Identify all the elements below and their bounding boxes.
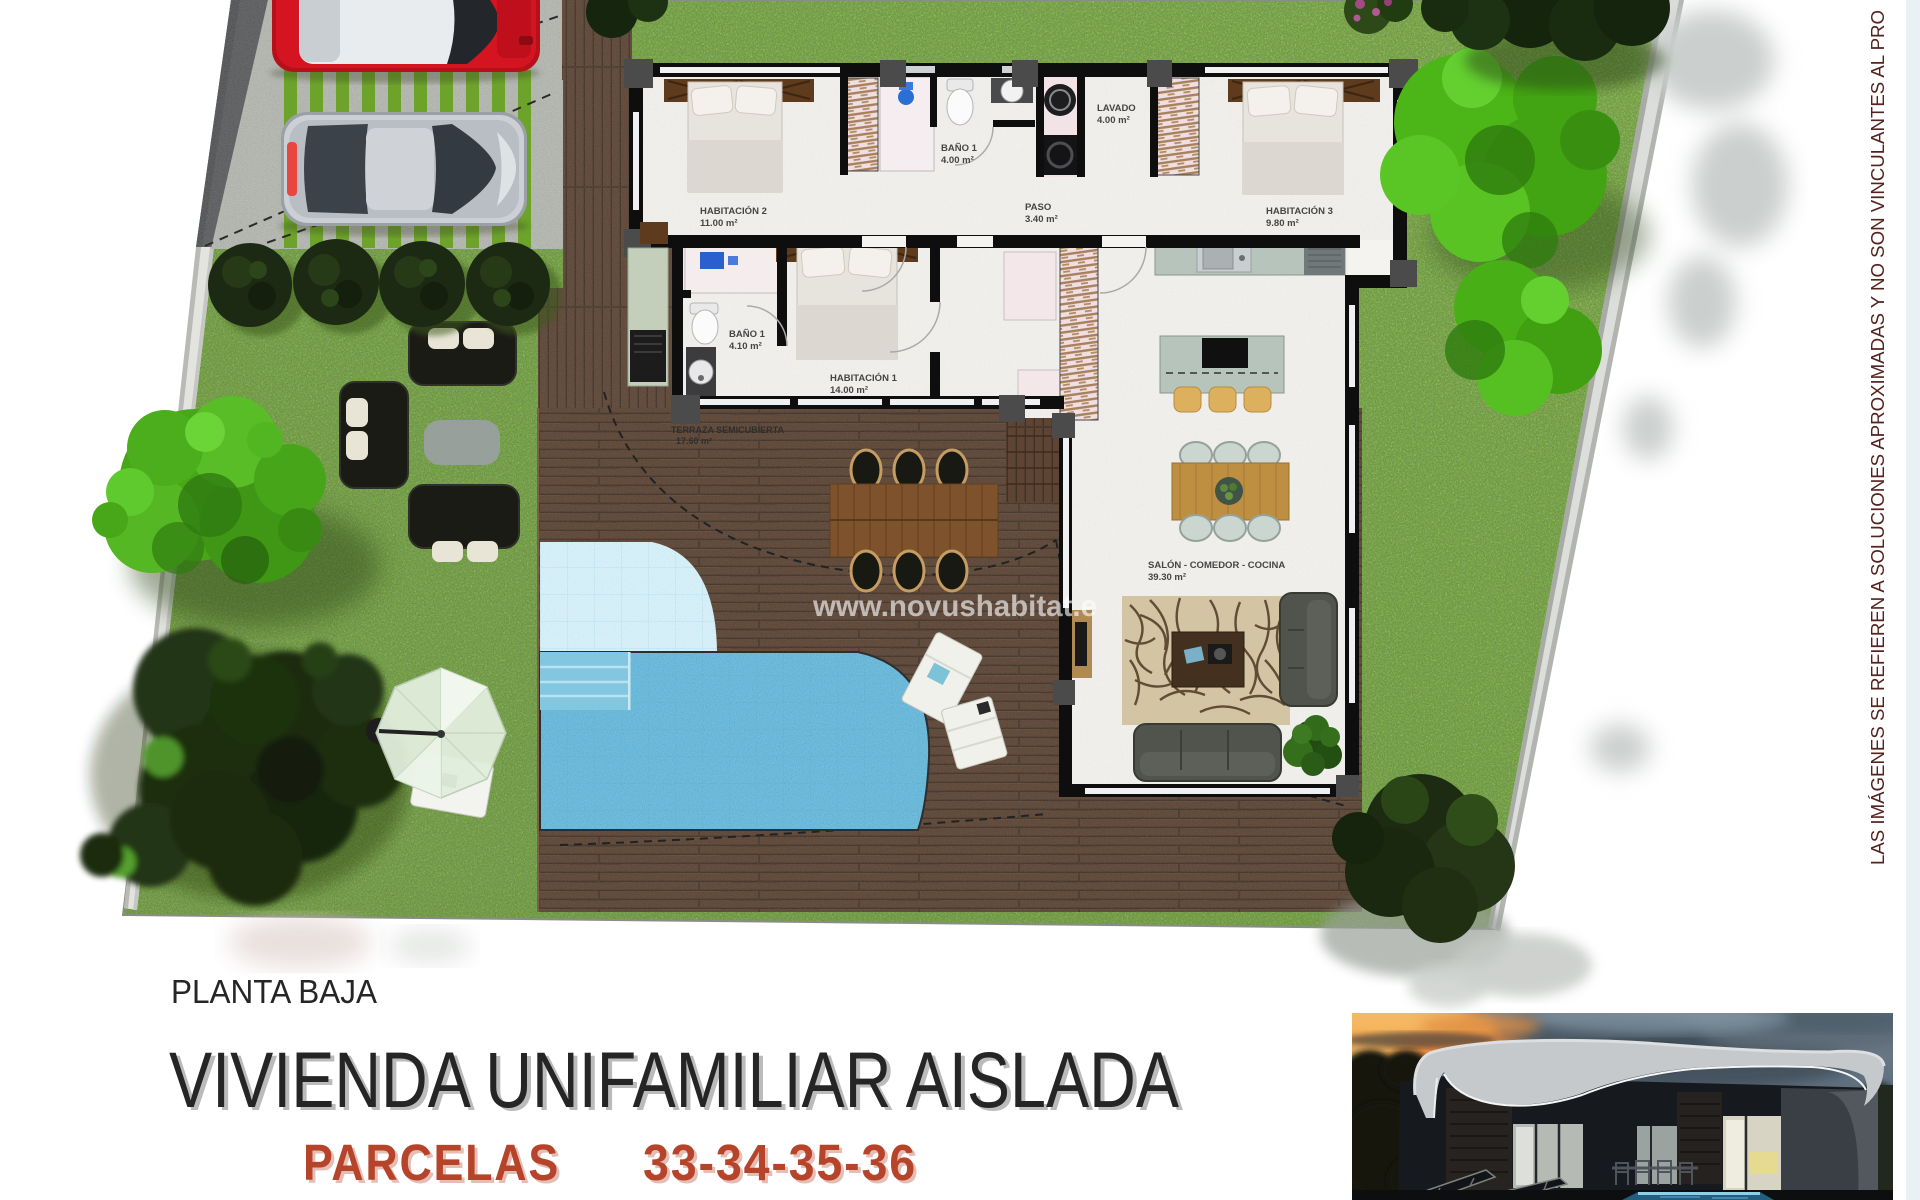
svg-text:14.00 m²: 14.00 m² <box>830 385 868 396</box>
svg-text:VIVIENDA UNIFAMILIAR AISLADA: VIVIENDA UNIFAMILIAR AISLADA <box>169 1035 1179 1124</box>
svg-text:LAVADO: LAVADO <box>1097 103 1136 114</box>
svg-text:3.40 m²: 3.40 m² <box>1025 214 1058 225</box>
svg-text:HABITACIÓN 1: HABITACIÓN 1 <box>830 372 898 384</box>
svg-text:33-34-35-36: 33-34-35-36 <box>643 1134 917 1191</box>
svg-text:9.80 m²: 9.80 m² <box>1266 218 1299 229</box>
svg-text:39.30 m²: 39.30 m² <box>1148 572 1186 583</box>
svg-text:HABITACIÓN 3: HABITACIÓN 3 <box>1266 205 1333 217</box>
svg-text:PLANTA BAJA: PLANTA BAJA <box>171 973 377 1010</box>
svg-text:BAÑO 1: BAÑO 1 <box>729 329 766 340</box>
svg-text:www.novushabitat.e: www.novushabitat.e <box>812 590 1097 623</box>
svg-text:4.10 m²: 4.10 m² <box>729 341 762 352</box>
svg-text:TERRAZA SEMICUBIERTA: TERRAZA SEMICUBIERTA <box>671 425 784 435</box>
svg-text:HABITACIÓN 2: HABITACIÓN 2 <box>700 205 767 217</box>
svg-text:17.60 m²: 17.60 m² <box>676 436 712 446</box>
svg-text:SALÓN - COMEDOR - COCINA: SALÓN - COMEDOR - COCINA <box>1148 559 1285 571</box>
svg-text:4.00 m²: 4.00 m² <box>1097 115 1130 126</box>
svg-text:BAÑO 1: BAÑO 1 <box>941 143 978 154</box>
svg-text:11.00 m²: 11.00 m² <box>700 218 738 229</box>
svg-text:4.00 m²: 4.00 m² <box>941 155 974 166</box>
svg-text:PASO: PASO <box>1025 202 1051 213</box>
svg-text:PARCELAS: PARCELAS <box>303 1134 560 1191</box>
svg-text:LAS IMÁGENES SE REFIEREN A SOL: LAS IMÁGENES SE REFIEREN A SOLUCIONES AP… <box>1867 10 1888 865</box>
